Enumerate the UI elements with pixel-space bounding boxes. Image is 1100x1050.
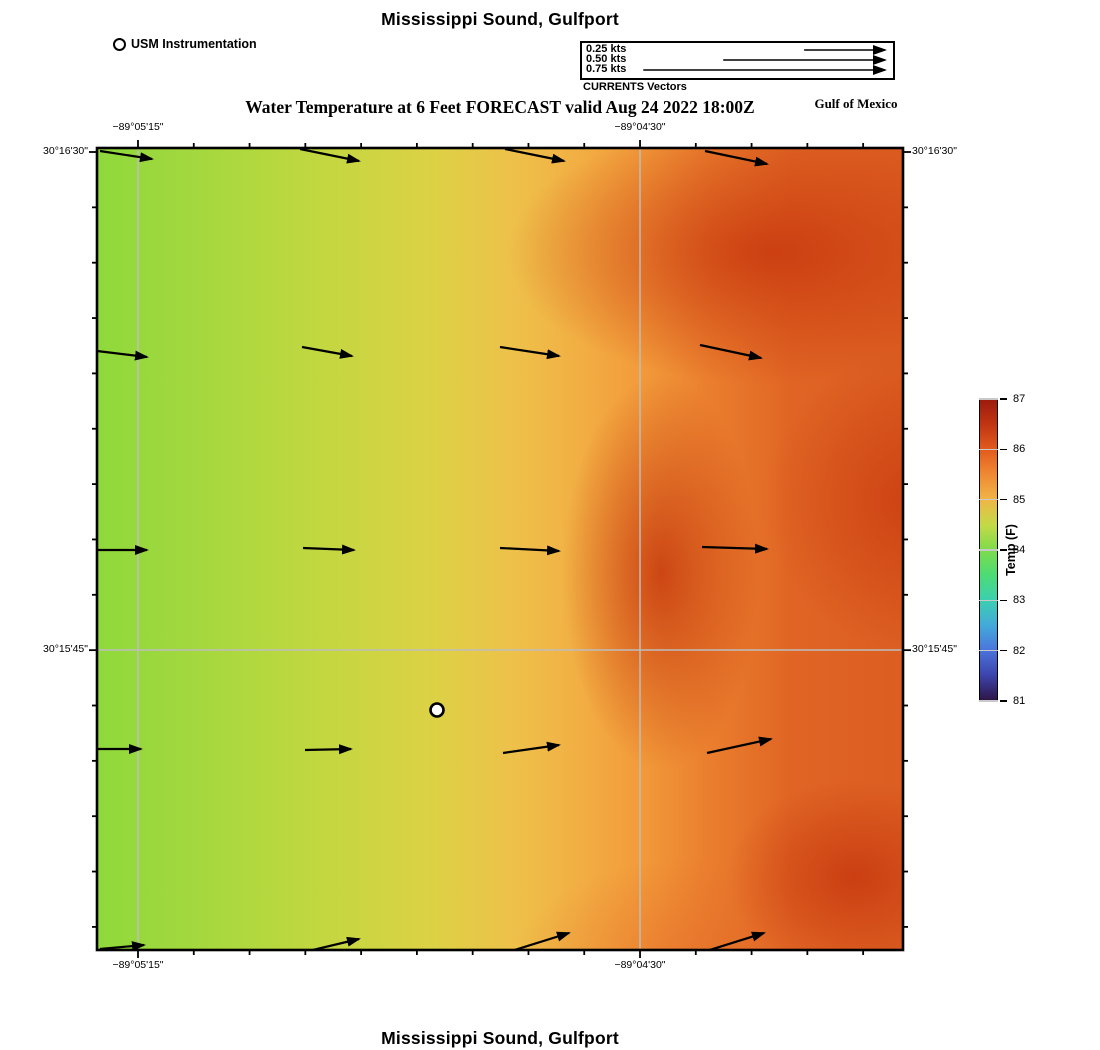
temperature-heatmap xyxy=(97,148,903,950)
colorbar-tick xyxy=(1000,700,1007,702)
colorbar-gridline xyxy=(979,650,998,651)
colorbar-gridline xyxy=(979,398,998,399)
axis-tick-label: −89°04'30" xyxy=(580,121,700,133)
colorbar-tick xyxy=(1000,449,1007,451)
axis-tick-label: 30°15'45" xyxy=(0,643,88,655)
colorbar-tick-label: 86 xyxy=(1013,442,1025,456)
colorbar-tick xyxy=(1000,650,1007,652)
colorbar-title: Temp (F) xyxy=(1004,505,1094,595)
instrumentation-legend-label: USM Instrumentation xyxy=(131,37,257,51)
colorbar-tick xyxy=(1000,499,1007,501)
colorbar-gridline xyxy=(979,499,998,500)
currents-legend-arrows xyxy=(582,43,893,78)
axis-tick-label: 30°15'45" xyxy=(912,643,957,655)
colorbar-gridline xyxy=(979,700,998,701)
colorbar-gridline xyxy=(979,549,998,550)
axis-tick-label: 30°16'30" xyxy=(912,145,957,157)
station-marker-icon xyxy=(113,38,126,51)
colorbar-tick-label: 81 xyxy=(1013,694,1025,708)
axis-tick-label: −89°05'15" xyxy=(78,121,198,133)
colorbar-gridline xyxy=(979,449,998,450)
region-label: Gulf of Mexico xyxy=(756,96,956,112)
footer-title: Mississippi Sound, Gulfport xyxy=(0,1028,1000,1049)
colorbar-gridline xyxy=(979,600,998,601)
currents-legend-caption: CURRENTS Vectors xyxy=(583,81,687,93)
colorbar-tick xyxy=(1000,398,1007,400)
colorbar-tick-label: 82 xyxy=(1013,644,1025,658)
currents-legend-box: 0.25 kts 0.50 kts 0.75 kts xyxy=(580,41,895,80)
axis-tick-label: −89°04'30" xyxy=(580,959,700,971)
colorbar-tick xyxy=(1000,600,1007,602)
colorbar-tick-label: 83 xyxy=(1013,593,1025,607)
colorbar-tick-label: 87 xyxy=(1013,392,1025,406)
page-title: Mississippi Sound, Gulfport xyxy=(0,9,1000,30)
axis-tick-label: 30°16'30" xyxy=(0,145,88,157)
instrumentation-legend: USM Instrumentation xyxy=(113,36,257,52)
forecast-figure: Mississippi Sound, Gulfport USM Instrume… xyxy=(0,0,1100,1050)
axis-tick-label: −89°05'15" xyxy=(78,959,198,971)
